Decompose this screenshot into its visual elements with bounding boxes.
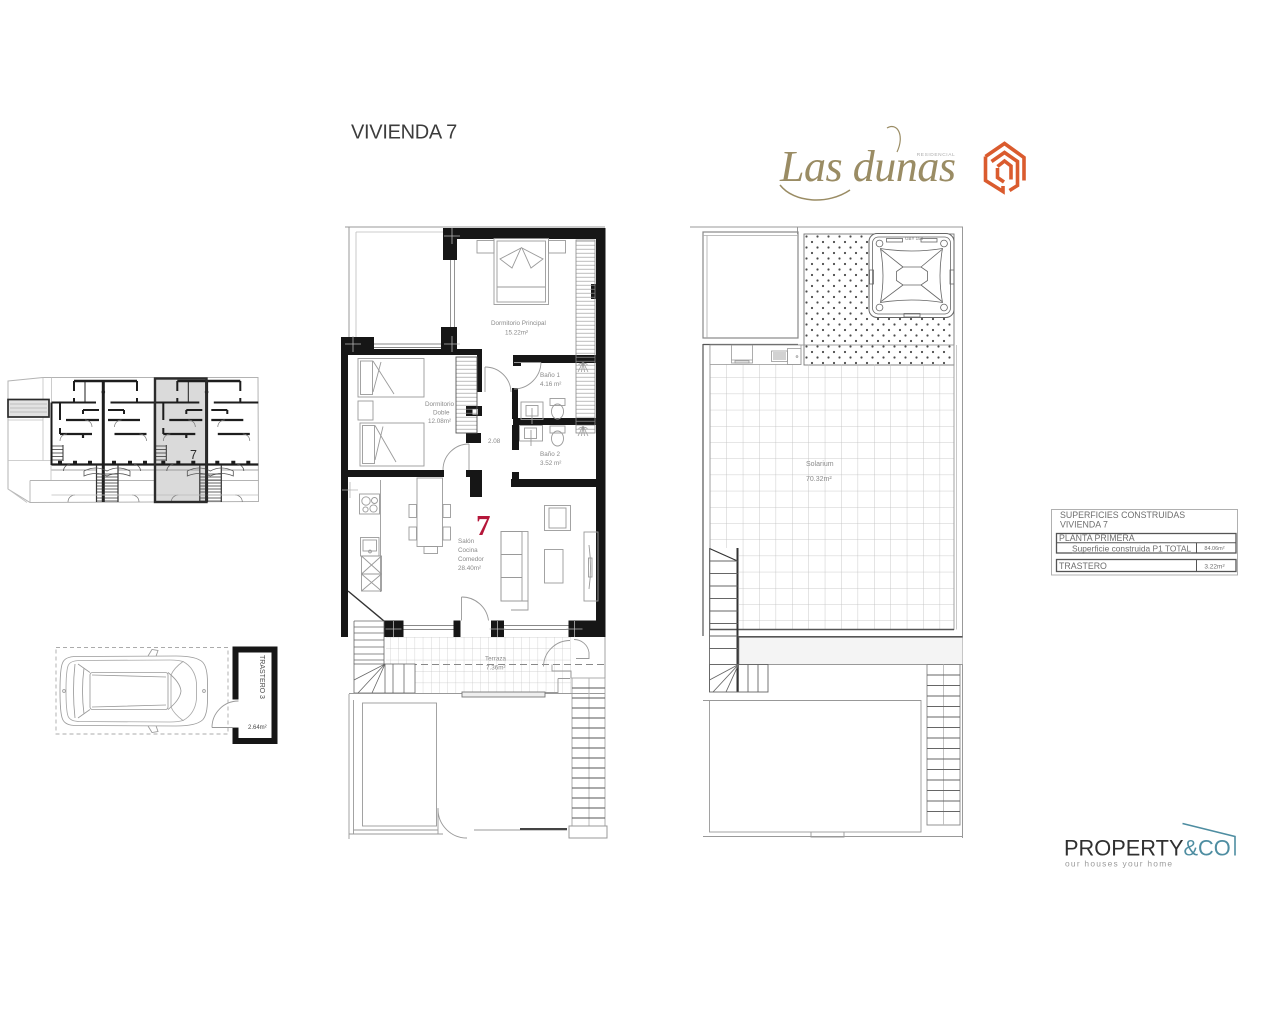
svg-text:70.32m²: 70.32m² bbox=[806, 476, 832, 483]
svg-text:Doble: Doble bbox=[433, 410, 450, 417]
svg-text:SUPERFICIES CONSTRUIDAS: SUPERFICIES CONSTRUIDAS bbox=[1060, 510, 1185, 520]
svg-text:2.64m²: 2.64m² bbox=[248, 725, 267, 731]
svg-text:28.40m²: 28.40m² bbox=[458, 565, 481, 572]
svg-text:7: 7 bbox=[476, 510, 491, 542]
svg-text:Cocina: Cocina bbox=[458, 547, 478, 554]
svg-text:Comedor: Comedor bbox=[458, 556, 484, 563]
svg-text:4.16 m²: 4.16 m² bbox=[540, 381, 561, 388]
svg-text:2.08: 2.08 bbox=[488, 438, 501, 445]
svg-text:Dormitorio: Dormitorio bbox=[425, 401, 455, 408]
svg-text:84.06m²: 84.06m² bbox=[1204, 546, 1224, 552]
svg-text:15.22m²: 15.22m² bbox=[505, 330, 528, 337]
svg-text:our houses your home: our houses your home bbox=[1065, 859, 1173, 869]
svg-text:GBY 150: GBY 150 bbox=[905, 236, 924, 241]
svg-text:VIVIENDA 7: VIVIENDA 7 bbox=[1060, 520, 1108, 530]
svg-text:12.08m²: 12.08m² bbox=[428, 418, 451, 425]
svg-text:TRASTERO: TRASTERO bbox=[1059, 561, 1107, 571]
svg-text:Baño 2: Baño 2 bbox=[540, 451, 560, 458]
svg-text:Dormitorio Principal: Dormitorio Principal bbox=[491, 320, 546, 327]
svg-text:7: 7 bbox=[190, 448, 197, 462]
svg-text:7.36m²: 7.36m² bbox=[486, 665, 506, 672]
svg-text:Solarium: Solarium bbox=[806, 461, 834, 468]
svg-text:RESIDENCIAL: RESIDENCIAL bbox=[917, 152, 956, 158]
svg-text:PROPERTY&CO: PROPERTY&CO bbox=[1064, 836, 1231, 861]
svg-text:VIVIENDA 7: VIVIENDA 7 bbox=[351, 122, 457, 144]
svg-text:Salón: Salón bbox=[458, 538, 475, 545]
svg-text:3.22m²: 3.22m² bbox=[1204, 564, 1225, 571]
svg-text:Las dunas: Las dunas bbox=[779, 142, 956, 191]
svg-text:TRASTERO 3: TRASTERO 3 bbox=[258, 655, 265, 699]
svg-text:Superficie construida P1 TOTAL: Superficie construida P1 TOTAL bbox=[1072, 544, 1192, 554]
svg-text:3.52 m²: 3.52 m² bbox=[540, 460, 561, 467]
svg-text:Terraza: Terraza bbox=[485, 656, 506, 663]
svg-text:PLANTA PRIMERA: PLANTA PRIMERA bbox=[1059, 533, 1135, 543]
svg-text:Baño 1: Baño 1 bbox=[540, 372, 560, 379]
